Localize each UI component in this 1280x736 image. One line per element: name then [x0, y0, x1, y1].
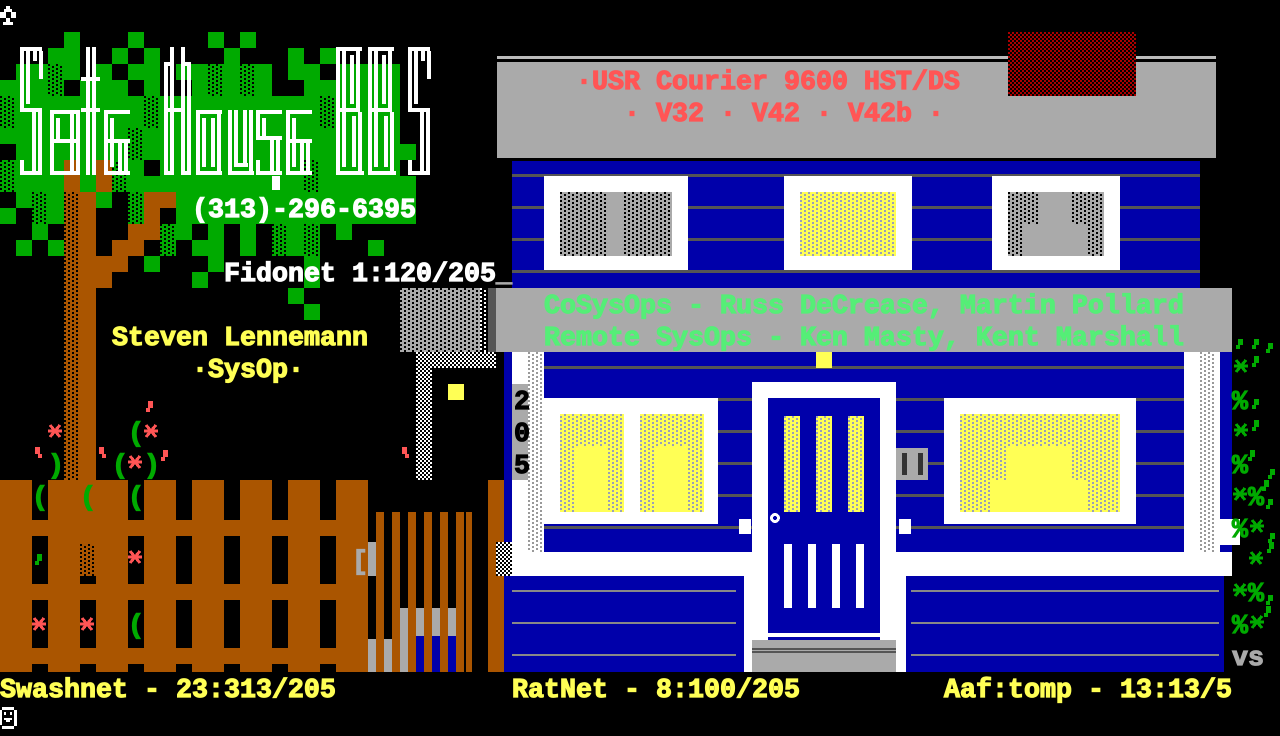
svg-text:(: ( [128, 612, 144, 642]
svg-text:Aaf:tomp - 13:13/5: Aaf:tomp - 13:13/5 [944, 676, 1232, 706]
svg-text:): ) [144, 452, 160, 482]
svg-text:CoSysOps - Russ DeCrease, Mart: CoSysOps - Russ DeCrease, Martin Pollard [544, 292, 1184, 322]
svg-text:(: ( [32, 484, 48, 514]
svg-text:Steven Lennemann: Steven Lennemann [112, 324, 368, 354]
svg-text:·USR Courier 9600 HST/DS: ·USR Courier 9600 HST/DS [576, 68, 960, 98]
svg-text:Swashnet - 23:313/205: Swashnet - 23:313/205 [0, 676, 336, 706]
svg-text:%: % [1248, 580, 1265, 610]
svg-text:0: 0 [514, 420, 530, 450]
svg-text:(: ( [128, 484, 144, 514]
svg-text:%: % [1232, 388, 1249, 418]
svg-text:Remote SysOps - Ken Masty, Ken: Remote SysOps - Ken Masty, Kent Marshall [544, 324, 1184, 354]
svg-text:[: [ [352, 548, 368, 578]
svg-text:Fidonet 1:120/205: Fidonet 1:120/205 [224, 260, 496, 290]
svg-text:): ) [48, 452, 64, 482]
svg-text:·SysOp·: ·SysOp· [192, 356, 304, 386]
svg-text:5: 5 [514, 452, 530, 482]
svg-text:%: % [1232, 452, 1249, 482]
svg-text:vs: vs [1232, 644, 1264, 674]
svg-text:(313)-296-6395: (313)-296-6395 [192, 196, 416, 226]
svg-text:(: ( [80, 484, 96, 514]
svg-text:%: % [1232, 516, 1249, 546]
svg-text:RatNet - 8:100/205: RatNet - 8:100/205 [512, 676, 800, 706]
svg-text:%: % [1232, 612, 1249, 642]
svg-text:_: _ [495, 260, 513, 290]
svg-text:· V32 · V42 · V42b ·: · V32 · V42 · V42b · [624, 100, 944, 130]
svg-text:(: ( [112, 452, 128, 482]
svg-text:2: 2 [514, 388, 530, 418]
svg-text:(: ( [128, 420, 144, 450]
